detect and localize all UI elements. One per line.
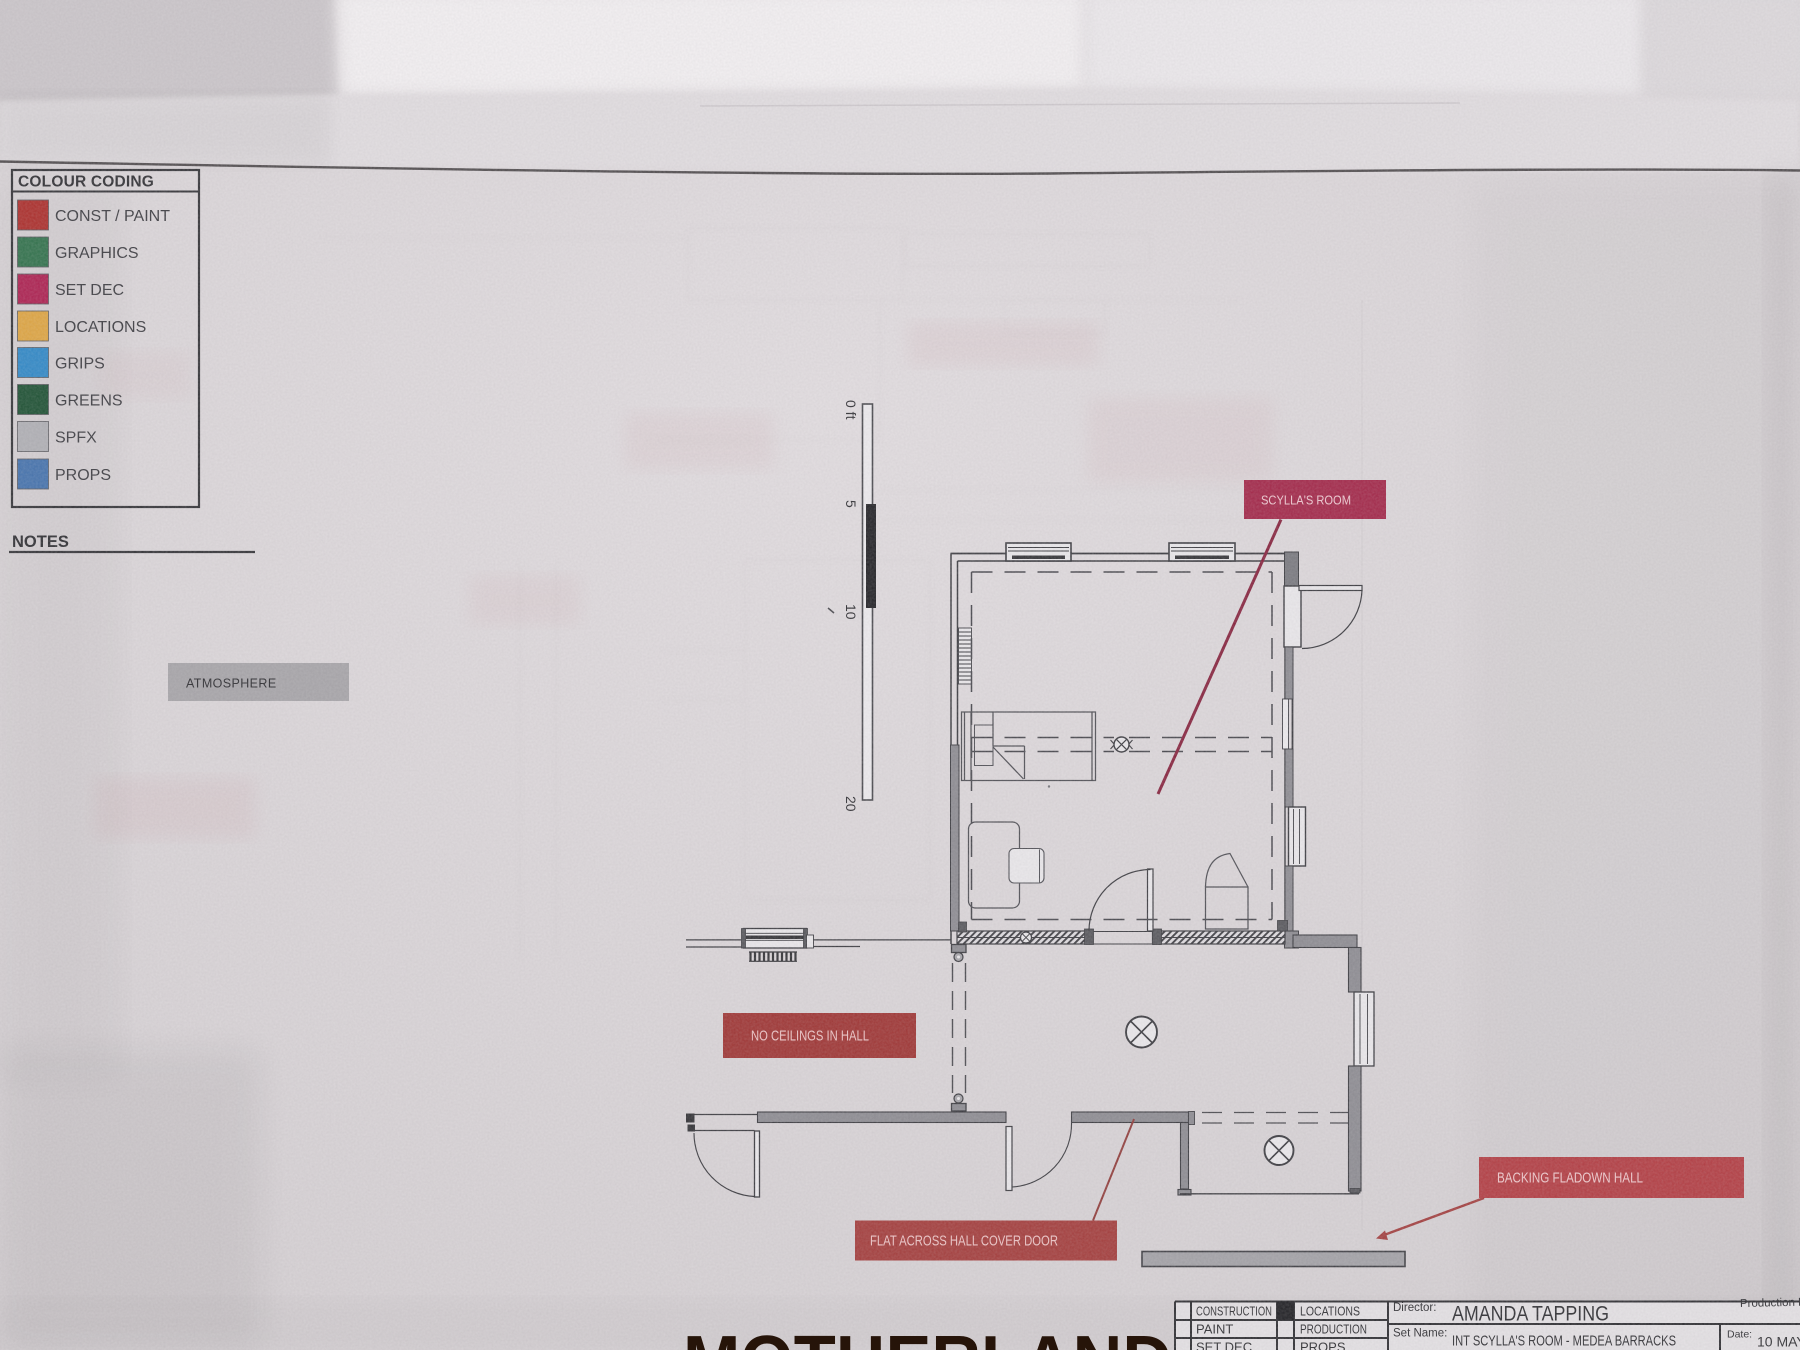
svg-text:MOTHERLAND: MOTHERLAND	[683, 1322, 1172, 1350]
